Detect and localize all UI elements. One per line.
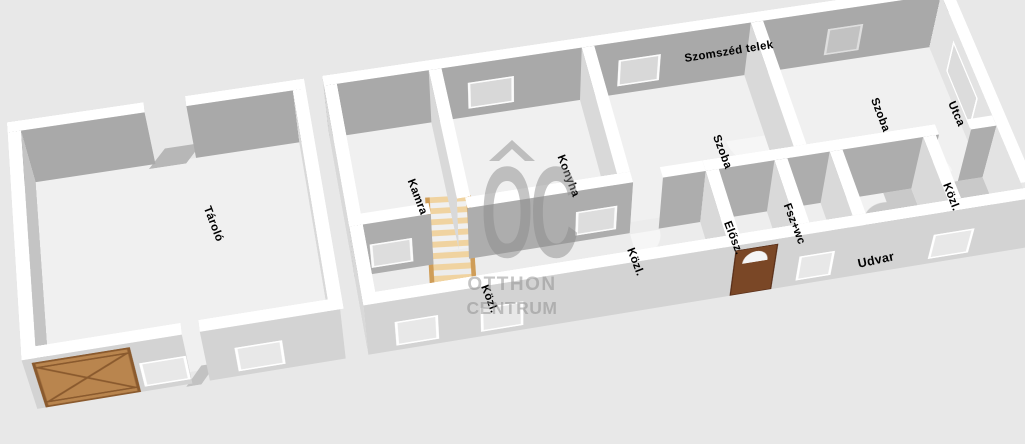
- front-window: [480, 301, 523, 332]
- corridor-window: [370, 238, 414, 268]
- front-window: [395, 315, 440, 346]
- hall3-front-window: [928, 228, 975, 259]
- kitchen-window: [468, 76, 514, 109]
- storage-front-window: [234, 340, 285, 371]
- floor-plan-image: Tároló Kamra Konyha Szoba Közl. Közl. El…: [0, 0, 1025, 444]
- corridor-window: [575, 206, 617, 236]
- corridor-wall-segment: [659, 171, 706, 229]
- door-fanlight: [742, 249, 769, 264]
- plan-3d-scene: [0, 0, 1025, 444]
- bath-front-window: [795, 251, 835, 281]
- storage-front-window: [139, 356, 191, 387]
- plan-3d: [22, 36, 1025, 409]
- entrance-door: [730, 244, 779, 296]
- room2-back-window: [824, 24, 864, 55]
- room1-window: [617, 54, 661, 86]
